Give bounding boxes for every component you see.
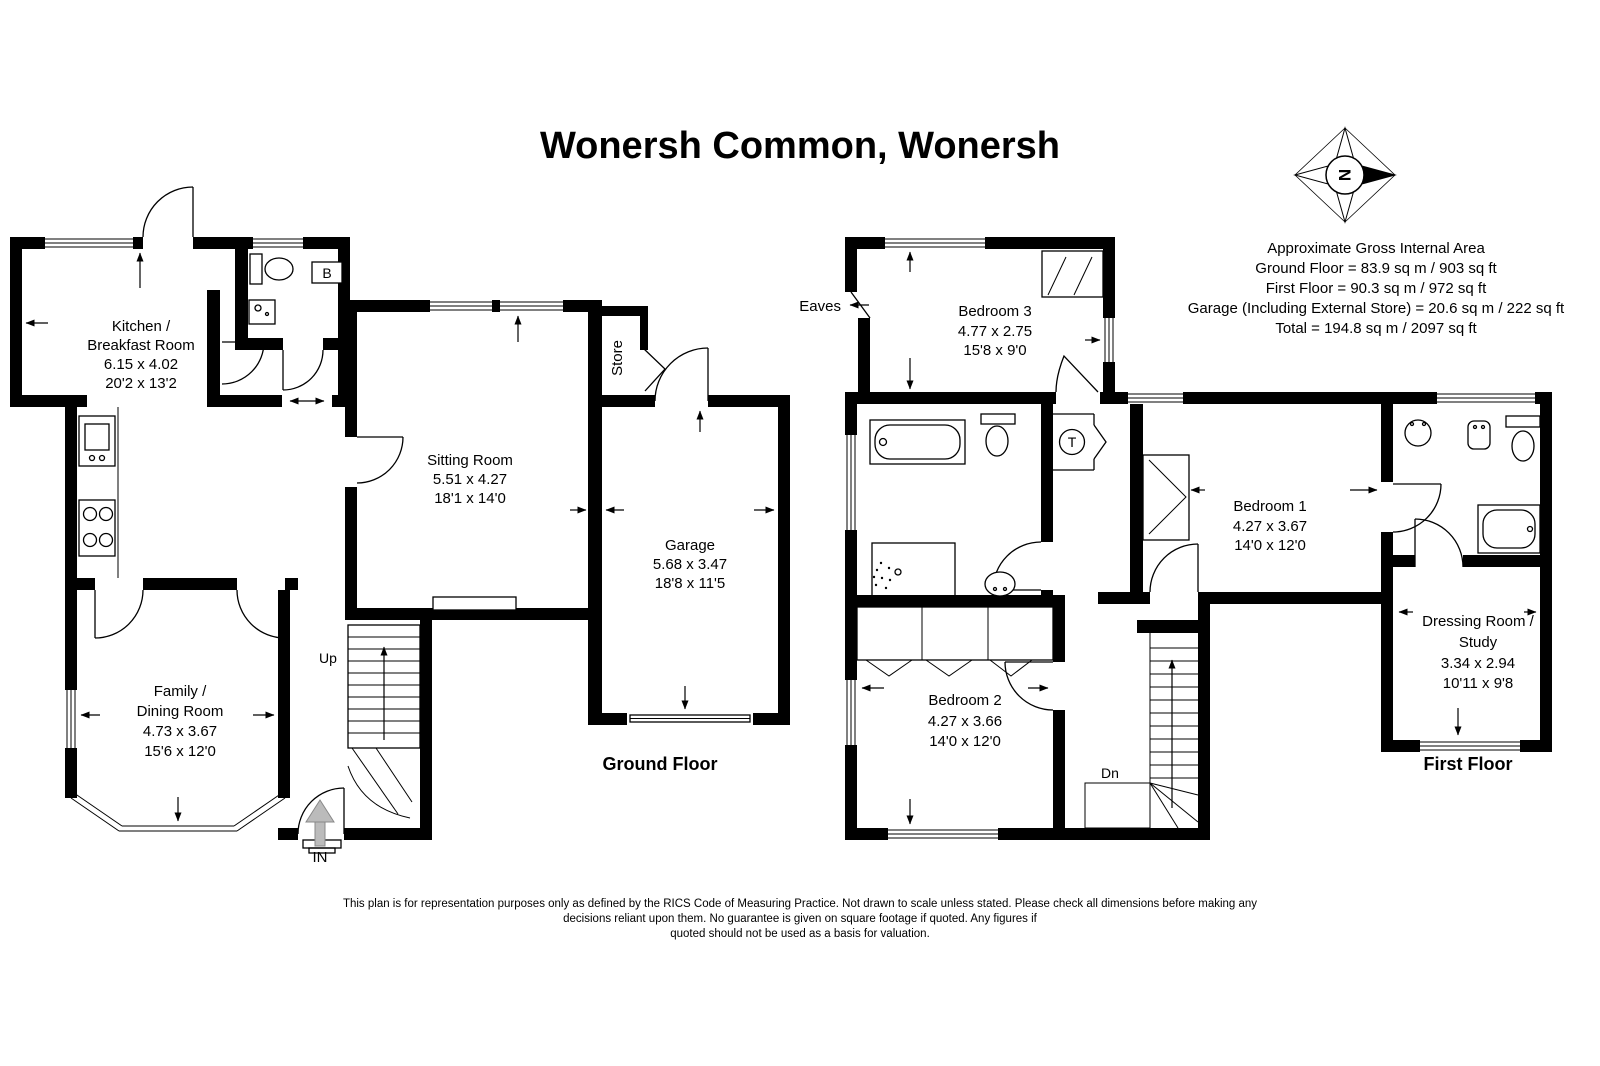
kitchen-dim-metric: 6.15 x 4.02 [104, 356, 178, 373]
up-label: Up [319, 650, 337, 666]
garage-dim-imperial: 18'8 x 11'5 [655, 575, 726, 592]
area-line: Total = 194.8 sq m / 2097 sq ft [1275, 320, 1477, 337]
sink-icon [79, 416, 115, 466]
floorplan-canvas: Wonersh Common, Wonersh N Approximate Gr… [0, 0, 1600, 1066]
family-label: Family / [154, 683, 207, 700]
bedroom2-dim-metric: 4.27 x 3.66 [928, 713, 1002, 730]
entrance-label: IN [313, 849, 328, 866]
bedroom3-dim-metric: 4.77 x 2.75 [958, 323, 1032, 340]
bath-icon [870, 420, 965, 464]
dressing-label2: Study [1459, 634, 1498, 651]
sitting-dim-metric: 5.51 x 4.27 [433, 471, 507, 488]
ensuite-bath-icon [1478, 505, 1540, 553]
kitchen-label2: Breakfast Room [87, 337, 195, 354]
family-dim-imperial: 15'6 x 12'0 [144, 743, 216, 760]
family-dim-metric: 4.73 x 3.67 [143, 723, 217, 740]
hob-icon [79, 500, 115, 556]
basin-icon [985, 572, 1015, 596]
bedroom2-dim-imperial: 14'0 x 12'0 [929, 733, 1001, 750]
floorplan-page: Wonersh Common, Wonersh N Approximate Gr… [0, 0, 1600, 1066]
area-line: Ground Floor = 83.9 sq m / 903 sq ft [1255, 260, 1497, 277]
dressing-dim-imperial: 10'11 x 9'8 [1443, 675, 1514, 692]
family-label2: Dining Room [137, 703, 224, 720]
page-title: Wonersh Common, Wonersh [540, 125, 1060, 167]
ensuite-basin-icon [1405, 420, 1431, 446]
sitting-dim-imperial: 18'1 x 14'0 [434, 490, 506, 507]
first-floor-title: First Floor [1424, 754, 1513, 774]
area-line: Approximate Gross Internal Area [1267, 240, 1485, 257]
bedroom3-dim-imperial: 15'8 x 9'0 [963, 342, 1026, 359]
bedroom3-label: Bedroom 3 [958, 303, 1031, 320]
tank-label: T [1068, 434, 1077, 450]
bedroom1-dim-imperial: 14'0 x 12'0 [1234, 537, 1306, 554]
garage-dim-metric: 5.68 x 3.47 [653, 556, 727, 573]
sitting-label: Sitting Room [427, 452, 513, 469]
dressing-dim-metric: 3.34 x 2.94 [1441, 655, 1515, 672]
down-label: Dn [1101, 765, 1119, 781]
compass-north-label: N [1335, 169, 1354, 181]
store-label: Store [609, 340, 626, 376]
dressing-label: Dressing Room / [1422, 613, 1535, 630]
disclaimer-line: decisions reliant upon them. No guarante… [563, 913, 1038, 925]
garage-label: Garage [665, 537, 715, 554]
kitchen-label: Kitchen / [112, 318, 171, 335]
bedroom2-label: Bedroom 2 [928, 692, 1001, 709]
bidet-icon [1468, 421, 1490, 449]
kitchen-dim-imperial: 20'2 x 13'2 [105, 375, 177, 392]
basin-icon [249, 300, 275, 324]
bedroom1-label: Bedroom 1 [1233, 498, 1306, 515]
disclaimer-line: quoted should not be used as a basis for… [670, 928, 930, 940]
area-line: Garage (Including External Store) = 20.6… [1188, 300, 1565, 317]
ground-floor-title: Ground Floor [603, 754, 718, 774]
eaves-label: Eaves [799, 298, 841, 315]
fireplace [433, 597, 516, 610]
bedroom1-dim-metric: 4.27 x 3.67 [1233, 518, 1307, 535]
boiler-label: B [322, 265, 331, 281]
disclaimer-line: This plan is for representation purposes… [343, 898, 1257, 910]
area-line: First Floor = 90.3 sq m / 972 sq ft [1266, 280, 1487, 297]
